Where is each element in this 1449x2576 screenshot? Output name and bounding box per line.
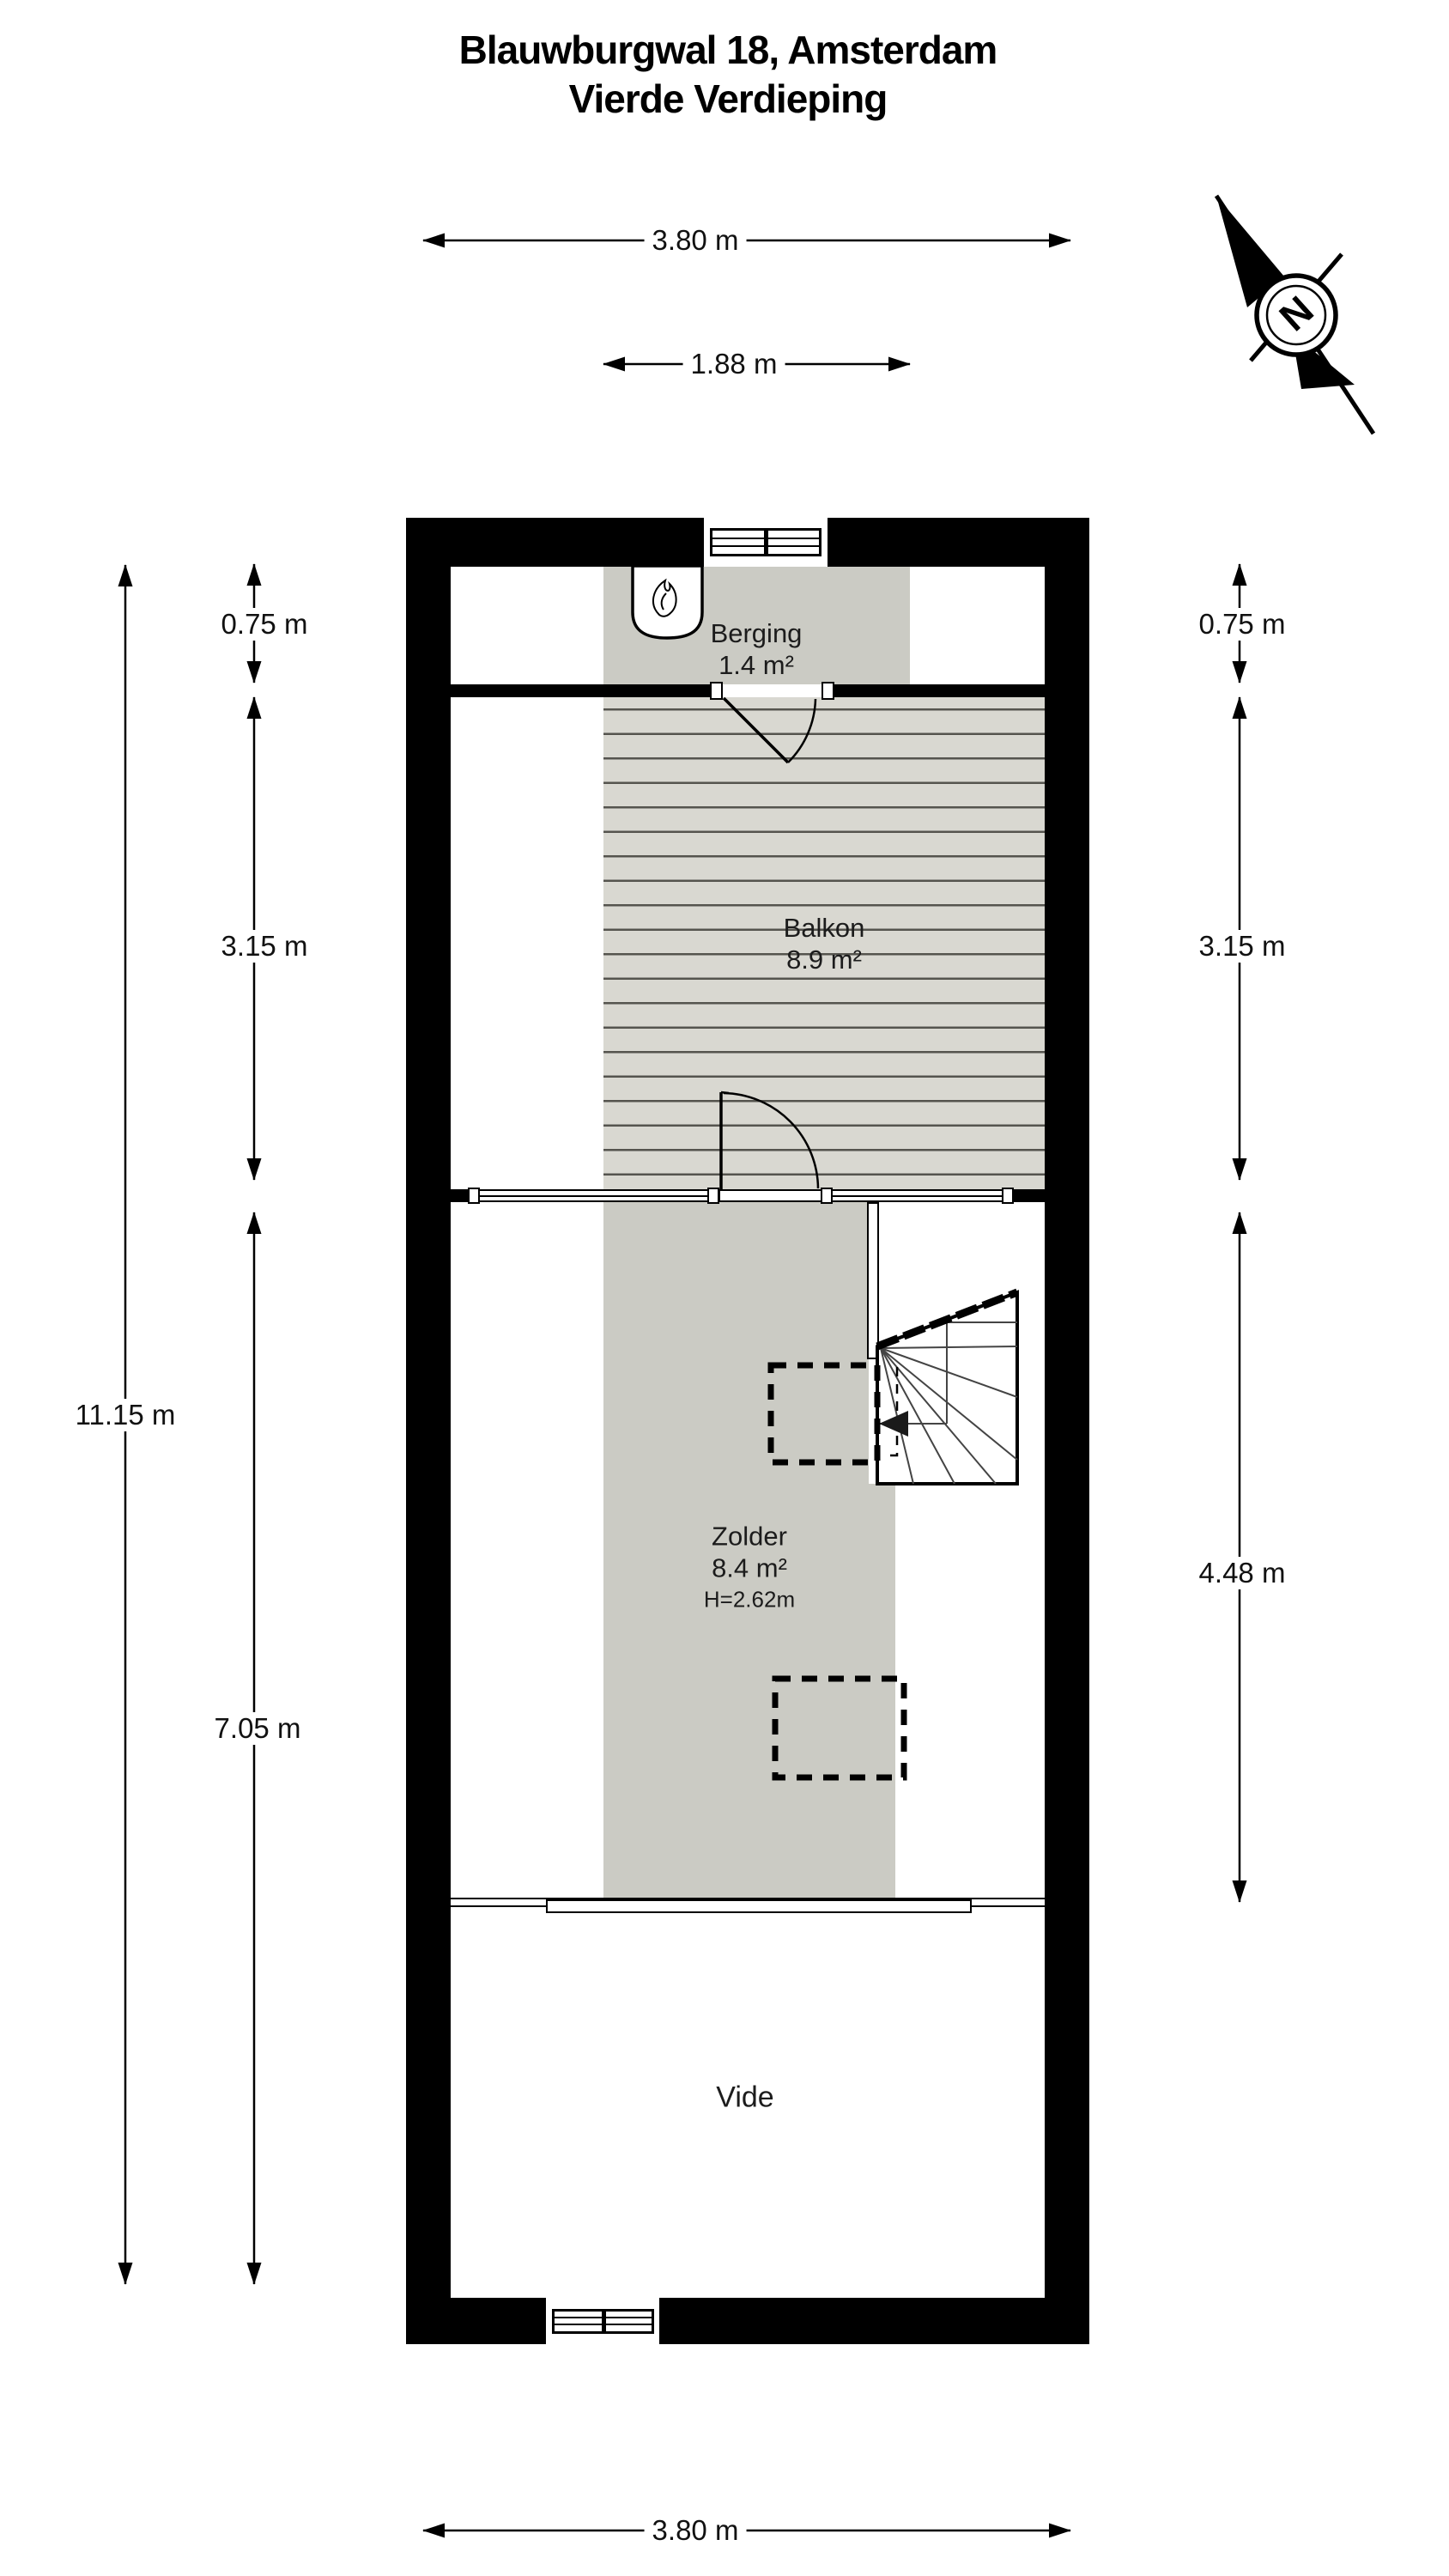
- balkon-door-icon: [721, 1092, 818, 1189]
- dim-left-balkon: 3.15 m: [214, 930, 316, 963]
- dim-top-width: 3.80 m: [645, 224, 747, 257]
- dim-bottom-width: 3.80 m: [645, 2514, 747, 2547]
- dashed-opening-lower: [775, 1679, 904, 1777]
- zolder-height: H=2.62m: [704, 1584, 795, 1616]
- zolder-name: Zolder: [704, 1521, 795, 1552]
- floorplan-page: Blauwburgwal 18, Amsterdam Vierde Verdie…: [0, 0, 1449, 2576]
- dashed-opening-upper: [771, 1365, 877, 1462]
- dim-right-zolder: 4.48 m: [1191, 1557, 1294, 1589]
- berging-area: 1.4 m²: [711, 649, 803, 681]
- balkon-area: 8.9 m²: [784, 944, 865, 975]
- berging-door-icon: [724, 698, 815, 762]
- zolder-area: 8.4 m²: [704, 1552, 795, 1584]
- zolder-label: Zolder 8.4 m² H=2.62m: [704, 1521, 795, 1616]
- balkon-name: Balkon: [784, 912, 865, 944]
- plan-linework: [0, 0, 1449, 2576]
- vide-label: Vide: [716, 2082, 773, 2114]
- dim-berging-width: 1.88 m: [683, 348, 785, 380]
- balkon-label: Balkon 8.9 m²: [784, 912, 865, 975]
- dim-left-berging: 0.75 m: [214, 608, 316, 641]
- berging-name: Berging: [711, 617, 803, 649]
- dim-right-berging: 0.75 m: [1191, 608, 1294, 641]
- dim-left-lower: 7.05 m: [207, 1712, 309, 1745]
- dim-left-total: 11.15 m: [68, 1399, 184, 1431]
- berging-label: Berging 1.4 m²: [711, 617, 803, 681]
- boiler-icon: [633, 566, 702, 638]
- stairs-icon: [877, 1292, 1017, 1484]
- dim-right-balkon: 3.15 m: [1191, 930, 1294, 963]
